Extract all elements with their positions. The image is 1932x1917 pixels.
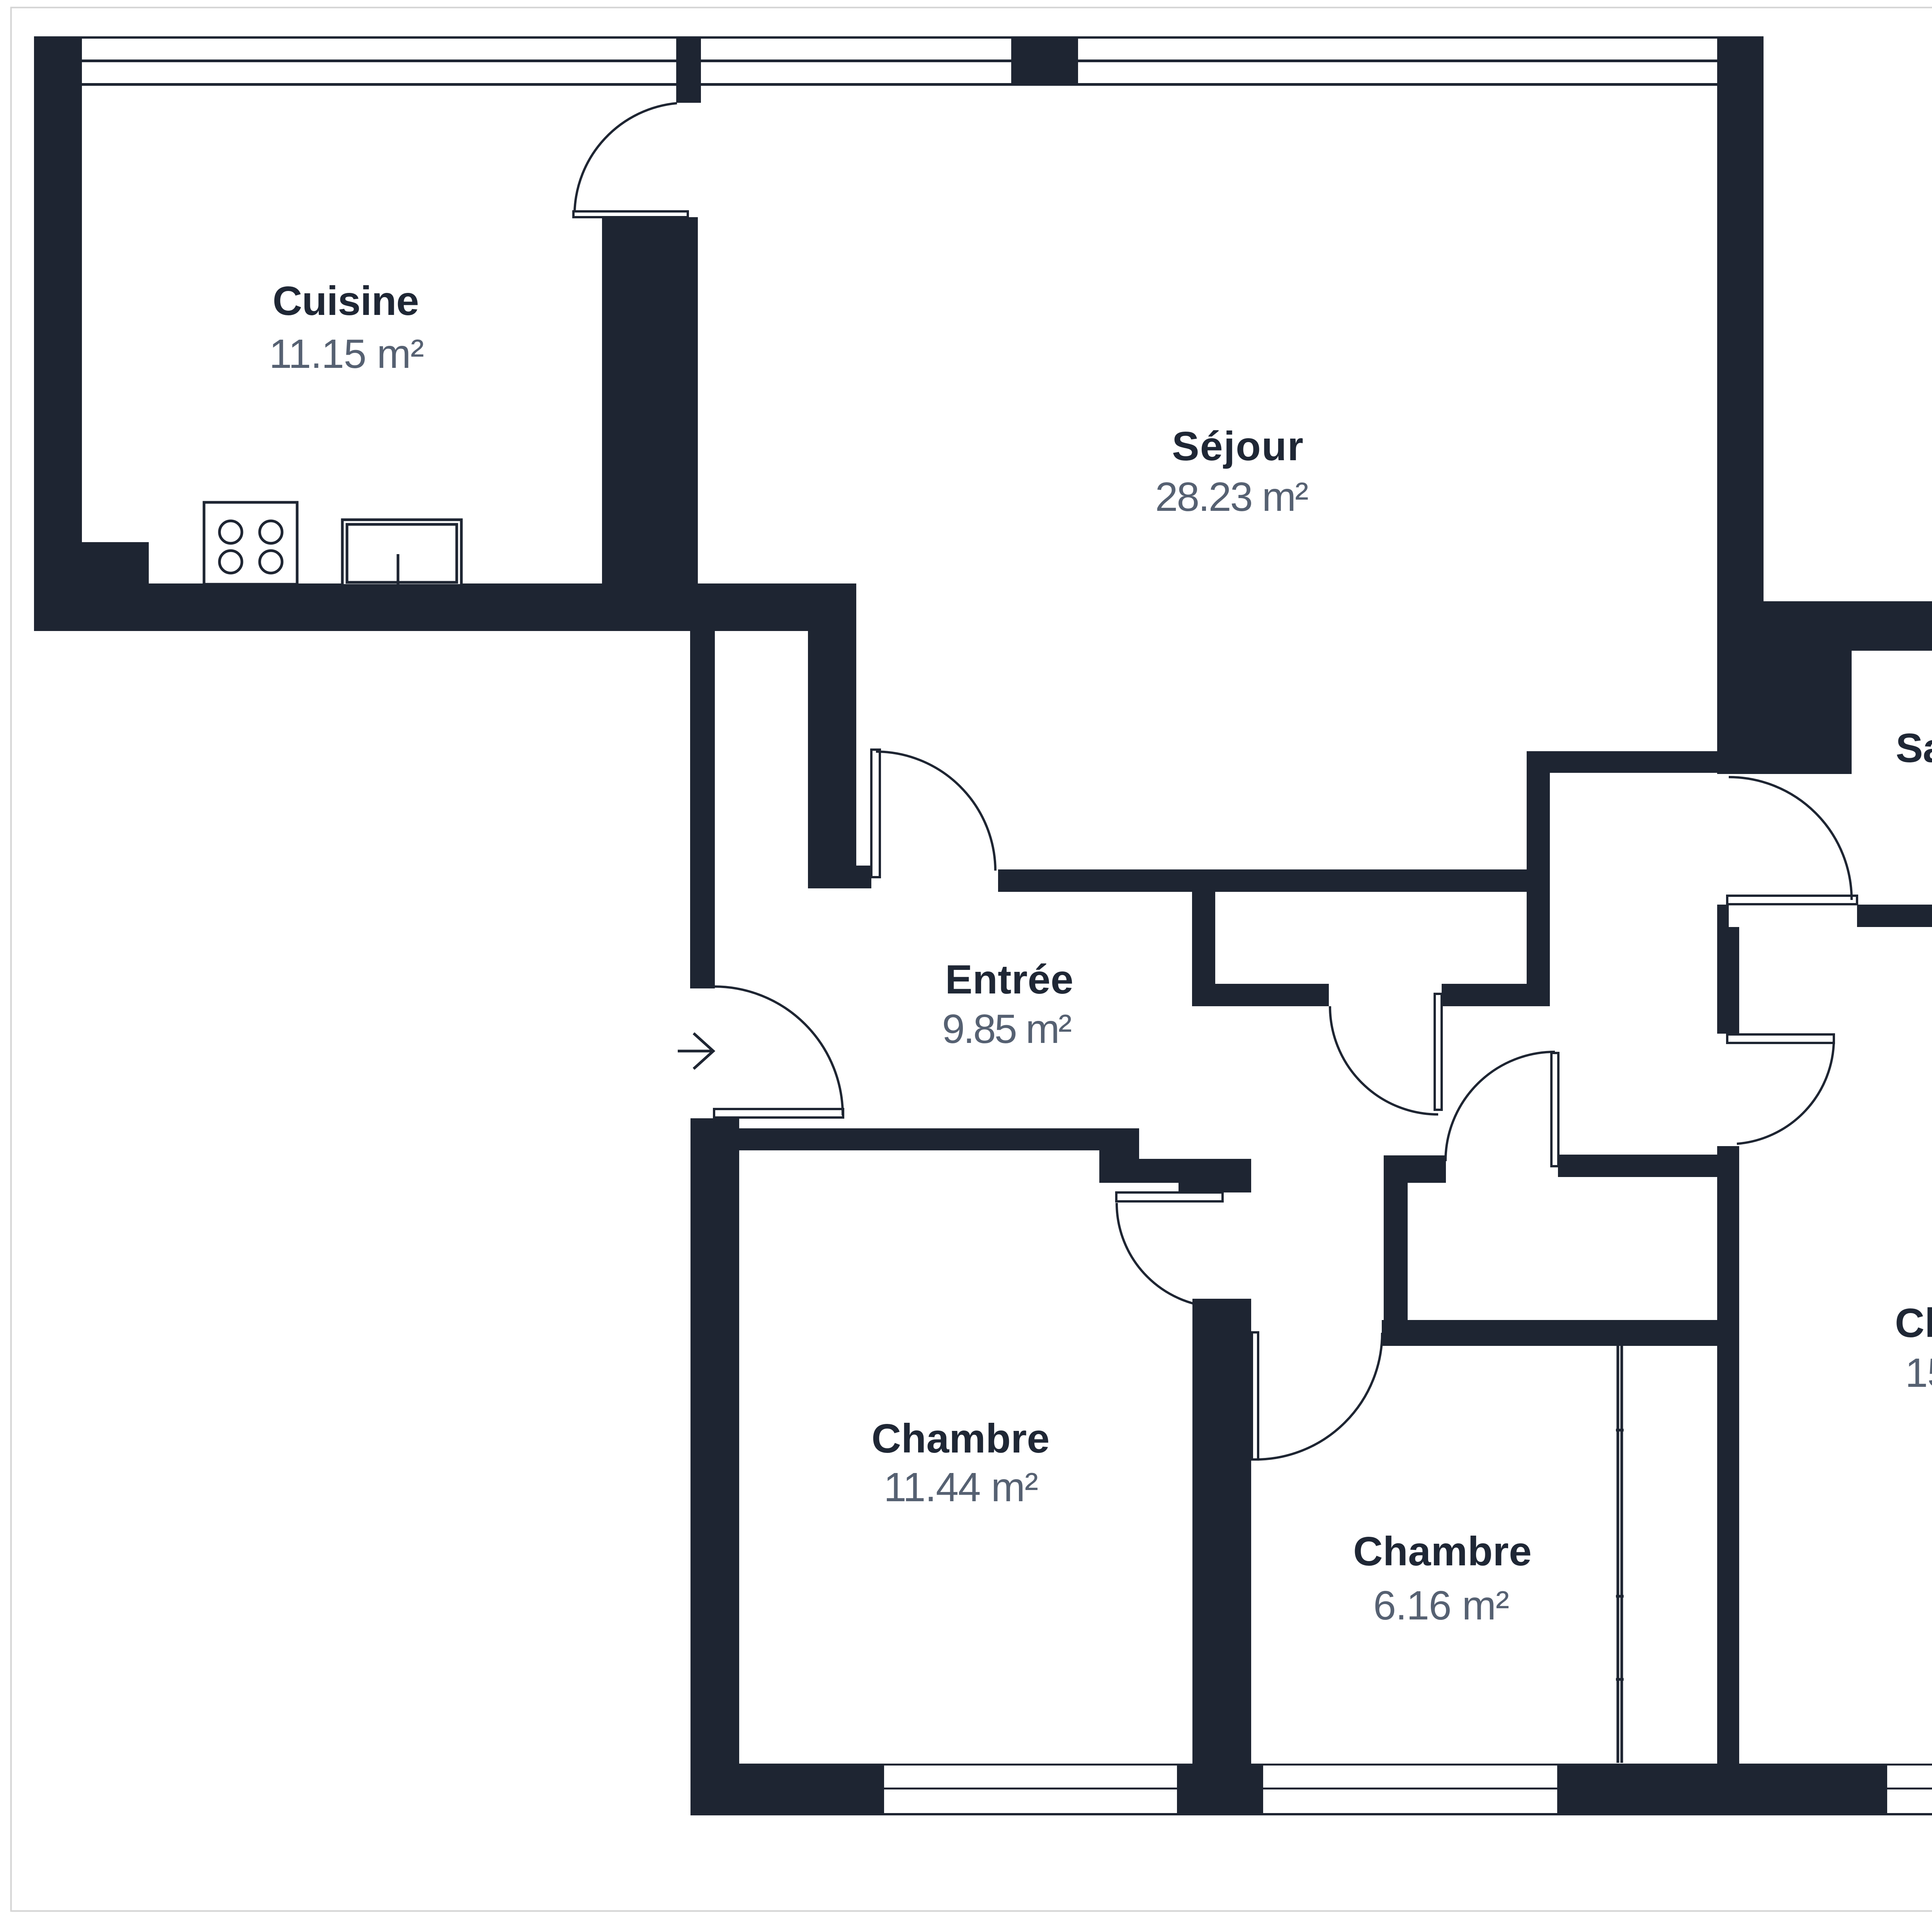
svg-text:Séjour: Séjour	[1172, 424, 1303, 469]
svg-text:Chambre: Chambre	[1353, 1529, 1532, 1574]
svg-text:Cuisine: Cuisine	[273, 278, 419, 324]
svg-text:6.16 m²: 6.16 m²	[1373, 1583, 1509, 1628]
svg-text:9.85 m²: 9.85 m²	[942, 1006, 1072, 1052]
svg-text:Salle de bains: Salle de bains	[1896, 725, 1932, 771]
svg-text:Chambre: Chambre	[872, 1416, 1050, 1461]
svg-text:Chambre: Chambre	[1895, 1300, 1932, 1346]
svg-text:Entrée: Entrée	[945, 957, 1073, 1002]
svg-text:15.78 m²: 15.78 m²	[1905, 1350, 1932, 1396]
svg-text:11.44 m²: 11.44 m²	[884, 1465, 1038, 1510]
svg-text:28.23 m²: 28.23 m²	[1155, 474, 1309, 520]
svg-text:11.15 m²: 11.15 m²	[269, 331, 424, 377]
